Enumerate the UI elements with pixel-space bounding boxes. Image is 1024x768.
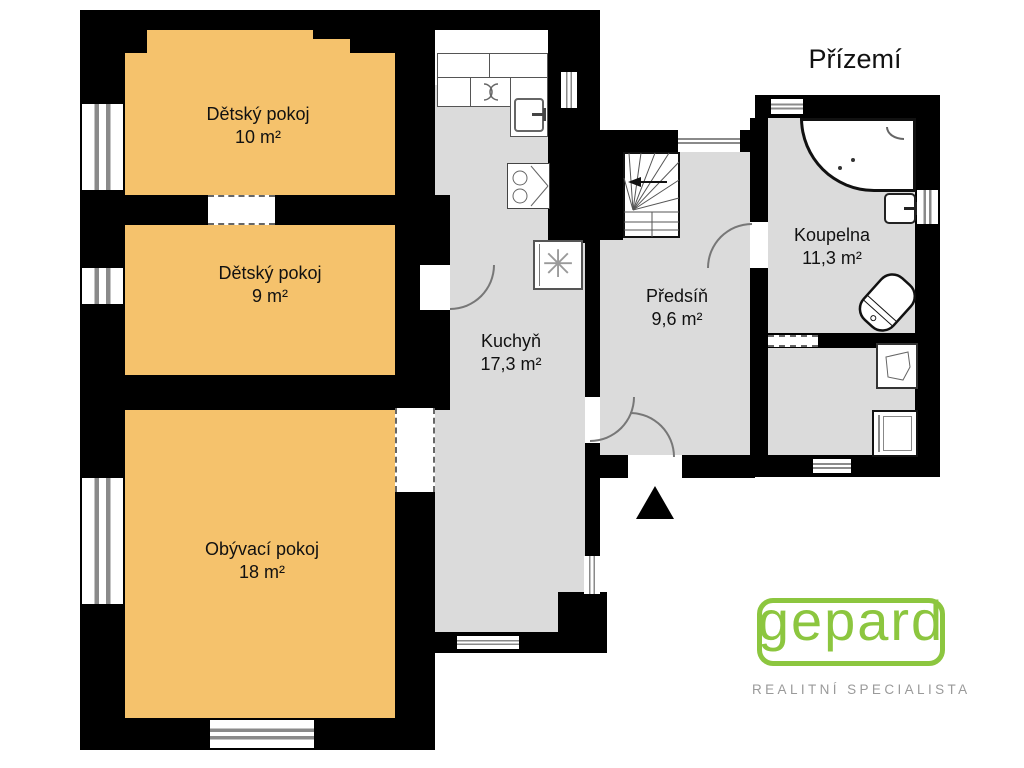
room-name: Koupelna — [794, 225, 870, 245]
room-name: Kuchyň — [481, 331, 541, 351]
bathtub-drain — [838, 166, 842, 170]
wall-step-c — [125, 30, 147, 53]
door-opening-koupelna-utility — [768, 335, 818, 347]
room-name: Dětský pokoj — [206, 104, 309, 124]
washing-machine-icon — [872, 410, 918, 457]
room-name: Předsíň — [646, 286, 708, 306]
kitchen-cabinet — [437, 77, 471, 107]
room-name: Obývací pokoj — [205, 539, 319, 559]
gepard-logo-text: gepard — [757, 572, 945, 668]
floor-plan: ✳ — [0, 0, 1024, 768]
room-area: 9 m² — [252, 286, 288, 306]
wall-above-living-room — [80, 375, 450, 410]
wall-predsin-bottom-a — [585, 455, 628, 478]
washer-drum — [883, 416, 912, 451]
window-left-3 — [82, 478, 123, 604]
cooktop-icon — [470, 77, 512, 107]
kitchen-counter — [489, 53, 548, 78]
door-opening-children-rooms — [208, 195, 275, 225]
room-area: 17,3 m² — [480, 354, 541, 374]
window-predsin-top — [678, 134, 740, 148]
window-utility-bottom — [813, 459, 851, 473]
room-label-detsky-2: Dětský pokoj 9 m² — [150, 262, 390, 309]
wall-predsin-top-a — [600, 130, 678, 152]
room-name: Dětský pokoj — [218, 263, 321, 283]
utility-sink-icon — [876, 343, 918, 389]
passage-living-kitchen — [395, 408, 435, 492]
room-area: 18 m² — [239, 562, 285, 582]
stairs-icon — [623, 152, 680, 238]
kitchen-sink-icon — [514, 98, 544, 132]
door-opening-entrance — [628, 455, 682, 478]
window-kitchen-top — [561, 72, 577, 108]
room-label-obyvaci: Obývací pokoj 18 m² — [142, 538, 382, 585]
bathroom-sink-icon — [884, 193, 916, 224]
kitchen-counter — [437, 53, 490, 78]
wall-predsin-bottom-b — [682, 455, 755, 478]
window-left-1 — [82, 104, 123, 190]
wall-stairs-left — [600, 152, 623, 240]
window-koupelna-top — [771, 99, 803, 114]
stove-edge — [539, 244, 540, 286]
gepard-logo-tagline: REALITNÍ SPECIALISTA — [752, 682, 952, 697]
window-kitchen-niche — [584, 556, 600, 594]
window-kitchen-bottom — [457, 636, 519, 649]
bathtub-drain — [851, 158, 855, 162]
page-title: Přízemí — [790, 44, 920, 75]
room-area: 10 m² — [235, 127, 281, 147]
window-left-2 — [82, 268, 123, 304]
entrance-arrow-icon — [636, 486, 674, 519]
stove-icon: ✳ — [533, 240, 583, 290]
stove-symbol: ✳ — [542, 246, 574, 284]
window-koupelna-right — [917, 190, 938, 224]
washer-door-edge — [878, 415, 880, 452]
room-area: 11,3 m² — [802, 248, 862, 268]
room-label-predsin: Předsíň 9,6 m² — [587, 285, 767, 332]
faucet-icon — [543, 108, 546, 121]
wall-kitchen-topright — [548, 10, 600, 243]
wall-kitchen-corner — [558, 592, 607, 632]
window-living-bottom — [210, 720, 314, 748]
corner-sink-icon — [507, 163, 550, 209]
wall-kitchen-bottom-b — [523, 632, 607, 653]
toilet-icon — [850, 266, 922, 342]
room-label-kuchyn: Kuchyň 17,3 m² — [421, 330, 601, 377]
faucet-icon — [914, 202, 917, 215]
door-opening-room2-kitchen — [420, 265, 450, 310]
room-area: 9,6 m² — [651, 309, 702, 329]
room-label-koupelna: Koupelna 11,3 m² — [732, 224, 932, 271]
room-label-detsky-1: Dětský pokoj 10 m² — [138, 103, 378, 150]
wall-step-b — [350, 30, 395, 53]
wall-top — [80, 10, 600, 30]
